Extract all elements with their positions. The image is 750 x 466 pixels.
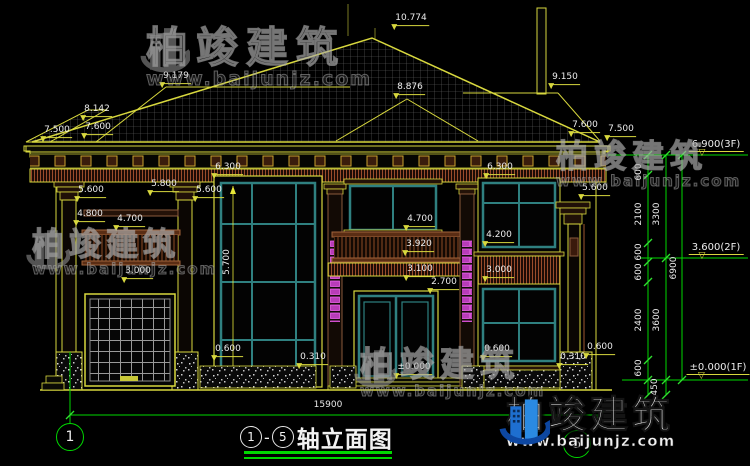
dim-label: 2100 (635, 203, 645, 226)
axis-bubble-1: 1 (56, 423, 84, 451)
dim-label: 0.600 (585, 343, 615, 355)
dim-label: 9.179 (161, 72, 191, 84)
axis-dash: - (264, 428, 270, 447)
dim-label: 5.700 (223, 249, 233, 275)
dim-label: 15900 (314, 401, 343, 411)
dim-label: 600 (635, 359, 645, 376)
dim-label: 7.500 (606, 125, 636, 137)
dim-label: 4.700 (115, 215, 145, 227)
dim-label: 5.600 (194, 186, 224, 198)
dim-label: ±0.000(1F) (687, 362, 750, 375)
title-underline-thick (244, 451, 392, 454)
dim-label: 0.600 (482, 345, 512, 357)
dim-label: 4.800 (75, 210, 105, 222)
dim-label: 600 (635, 243, 645, 260)
axis-end-circle: 5 (272, 426, 294, 448)
dim-label: 3.000 (484, 266, 514, 278)
dim-label: ±0.000 (395, 363, 432, 375)
dim-label: 5.600 (580, 184, 610, 196)
title-underline-thin (244, 457, 392, 459)
right-lower-window (474, 284, 564, 370)
dim-label: 3.600(2F) (689, 242, 744, 255)
dim-label: 5.600 (76, 186, 106, 198)
dentil-band (30, 154, 606, 168)
dim-label: 4.700 (405, 215, 435, 227)
cad-elevation-canvas: 1 5 10.7749.1799.1508.8768.1427.6007.500… (0, 0, 750, 466)
drawing-title: 1 - 5 轴立面图 (240, 420, 393, 454)
dim-label: 8.142 (82, 105, 112, 117)
roof (26, 4, 600, 142)
dim-label: 4.200 (484, 231, 514, 243)
dim-label: 2.700 (429, 278, 459, 290)
brand-logo: 柏竣建筑 www.baijunjz.com (498, 396, 675, 449)
dim-label: 3.000 (123, 267, 153, 279)
dim-label: 3600 (653, 309, 663, 332)
dim-label: 7.600 (570, 121, 600, 133)
dim-label: 0.600 (213, 345, 243, 357)
dim-label: 8.876 (395, 83, 425, 95)
dim-label: 3.920 (404, 240, 434, 252)
dim-label: 0.310 (298, 353, 328, 365)
dim-label: 10.774 (393, 14, 429, 26)
dim-label: 6900 (670, 257, 680, 280)
dim-label: 3.100 (405, 265, 435, 277)
dim-label: 9.150 (550, 73, 580, 85)
title-text: 轴立面图 (297, 420, 393, 454)
dim-label: 6.900(3F) (689, 139, 744, 152)
chimney (537, 8, 546, 94)
dim-label: 600 (635, 263, 645, 280)
dim-label: 6.300 (485, 163, 515, 175)
dim-label: 7.600 (83, 123, 113, 135)
garage-door (85, 294, 175, 386)
floor-slab-band (328, 263, 468, 276)
axis-start-circle: 1 (240, 426, 262, 448)
dim-label: 5.800 (149, 180, 179, 192)
dim-label: 2400 (635, 309, 645, 332)
dim-label: 7.500 (42, 126, 72, 138)
balcony-railing (332, 232, 466, 262)
decor-column-right (456, 184, 478, 386)
dim-label: 600 (635, 163, 645, 180)
dim-label: 6.300 (213, 163, 243, 175)
dim-label: 3300 (653, 203, 663, 226)
